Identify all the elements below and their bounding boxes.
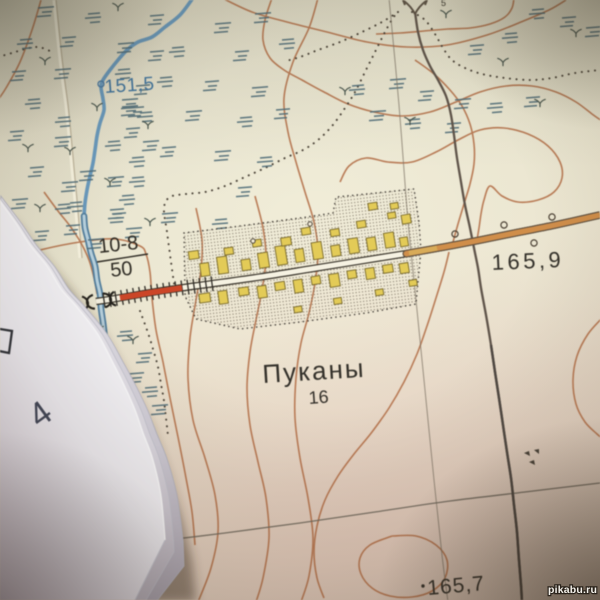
svg-text:pikabu.ru: pikabu.ru: [548, 584, 597, 596]
